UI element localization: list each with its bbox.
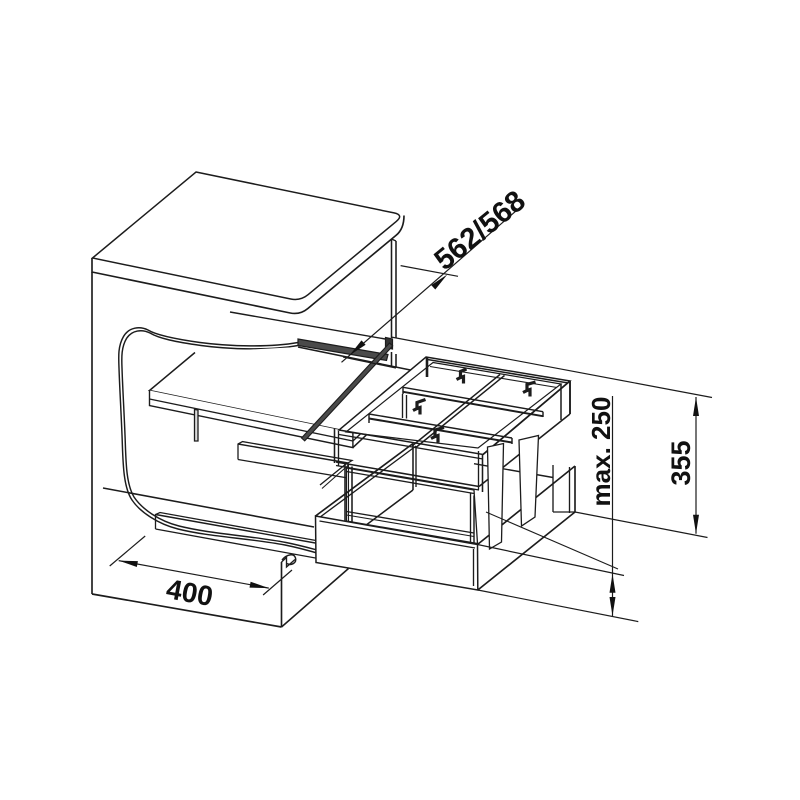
- svg-text:355: 355: [666, 440, 696, 485]
- svg-text:max. 250: max. 250: [586, 397, 616, 507]
